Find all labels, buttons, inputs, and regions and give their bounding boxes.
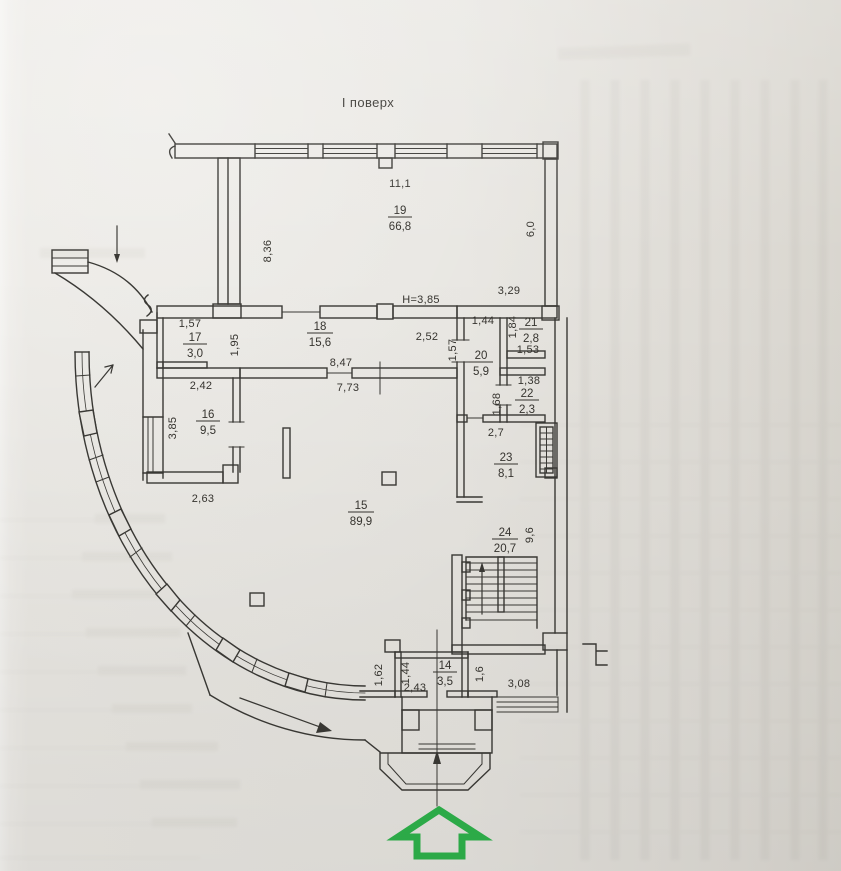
column bbox=[385, 640, 400, 652]
dim-room22-top: 1,38 bbox=[518, 375, 541, 387]
room-19-area: 66,8 bbox=[389, 221, 411, 233]
dim-room24-right: 9,6 bbox=[524, 527, 536, 543]
room-17-number: 17 bbox=[189, 332, 202, 344]
dim-room20-top: 1,44 bbox=[472, 315, 495, 327]
curved-facade bbox=[75, 352, 365, 700]
side-entry-arrow-icon bbox=[95, 365, 113, 387]
labels: І поверх 19 66,8 17 3,0 18 15,6 21 2,8 2… bbox=[167, 95, 543, 694]
dim-room22-left: 1,68 bbox=[491, 393, 503, 416]
dim-3-08: 3,08 bbox=[508, 678, 531, 690]
dim-room21-bottom: 1,53 bbox=[517, 344, 540, 356]
pier bbox=[223, 465, 238, 483]
ceiling-height-note: H=3,85 bbox=[402, 294, 440, 306]
scanned-floor-plan-photo: І поверх 19 66,8 17 3,0 18 15,6 21 2,8 2… bbox=[0, 0, 841, 871]
wall-break-mark-top-left bbox=[169, 134, 175, 158]
room-22-area: 2,3 bbox=[519, 404, 535, 416]
dim-1-62: 1,62 bbox=[373, 664, 385, 687]
dim-1-57-passage: 1,57 bbox=[447, 339, 459, 362]
room-20-number: 20 bbox=[475, 350, 488, 362]
dim-room23-top: 2,7 bbox=[488, 427, 504, 439]
room-15-number: 15 bbox=[355, 500, 368, 512]
west-cavity-wall bbox=[213, 158, 241, 318]
room-20-area: 5,9 bbox=[473, 366, 489, 378]
dim-room14-bottom: 2,43 bbox=[404, 682, 427, 694]
ramp-arrow-icon bbox=[316, 722, 332, 733]
side-steps bbox=[497, 697, 558, 712]
page-title: І поверх bbox=[342, 95, 394, 110]
dim-room14-left: 1,44 bbox=[400, 662, 412, 685]
dim-7-73: 7,73 bbox=[337, 382, 360, 394]
dim-room21-left: 1,84 bbox=[507, 316, 519, 339]
dim-room19-top: 11,1 bbox=[389, 178, 411, 190]
dim-room16-left: 3,85 bbox=[167, 417, 179, 440]
room-23-area: 8,1 bbox=[498, 468, 514, 480]
dim-room17-top: 1,57 bbox=[179, 318, 202, 330]
column bbox=[382, 472, 396, 485]
wall-break-mark-left bbox=[145, 295, 152, 316]
room-17-area: 3,0 bbox=[187, 348, 203, 360]
east-wall-lower bbox=[543, 318, 607, 712]
dim-room16-bottom: 2,63 bbox=[192, 493, 215, 505]
column bbox=[377, 304, 393, 319]
dim-room16-top: 2,42 bbox=[190, 380, 213, 392]
room-16-number: 16 bbox=[202, 409, 215, 421]
paper-bleedthrough bbox=[0, 43, 841, 860]
room-16-area: 9,5 bbox=[200, 425, 216, 437]
room-21-number: 21 bbox=[525, 317, 538, 329]
dim-corridor-8-47: 8,47 bbox=[330, 357, 353, 369]
dimension-labels: 11,1 6,0 8,36 3,29 H=3,85 1,57 1,95 2,52… bbox=[167, 178, 540, 694]
dim-room19-left: 8,36 bbox=[262, 240, 274, 263]
room-14-number: 14 bbox=[439, 660, 452, 672]
east-wall-upper bbox=[545, 159, 557, 306]
dim-2-52: 2,52 bbox=[416, 331, 439, 343]
room-15-area: 89,9 bbox=[350, 516, 372, 528]
room-23-number: 23 bbox=[500, 452, 513, 464]
dim-room19-right: 6,0 bbox=[525, 221, 537, 237]
room-19-number: 19 bbox=[394, 205, 407, 217]
entry-direction-arrow-icon bbox=[433, 750, 441, 764]
ramp-direction-line bbox=[240, 698, 320, 727]
dim-1-6: 1,6 bbox=[474, 666, 486, 682]
column bbox=[379, 158, 392, 168]
shaft-hatch bbox=[536, 423, 557, 478]
room-14-area: 3,5 bbox=[437, 676, 453, 688]
room-24-number: 24 bbox=[499, 527, 512, 539]
wall-19-18 bbox=[157, 304, 557, 319]
dim-3-29: 3,29 bbox=[498, 285, 521, 297]
dim-room17-right: 1,95 bbox=[229, 334, 241, 357]
walkway-entry-arrow-icon bbox=[114, 254, 120, 263]
staircase bbox=[452, 555, 545, 654]
green-entrance-arrow-icon bbox=[398, 810, 481, 856]
room-18-number: 18 bbox=[314, 321, 327, 333]
room-24-area: 20,7 bbox=[494, 543, 516, 555]
floor-plan-drawing: І поверх 19 66,8 17 3,0 18 15,6 21 2,8 2… bbox=[0, 0, 841, 871]
room-14-entrance bbox=[360, 630, 558, 806]
room-22-number: 22 bbox=[521, 388, 534, 400]
room-18-area: 15,6 bbox=[309, 337, 331, 349]
column bbox=[250, 593, 264, 606]
